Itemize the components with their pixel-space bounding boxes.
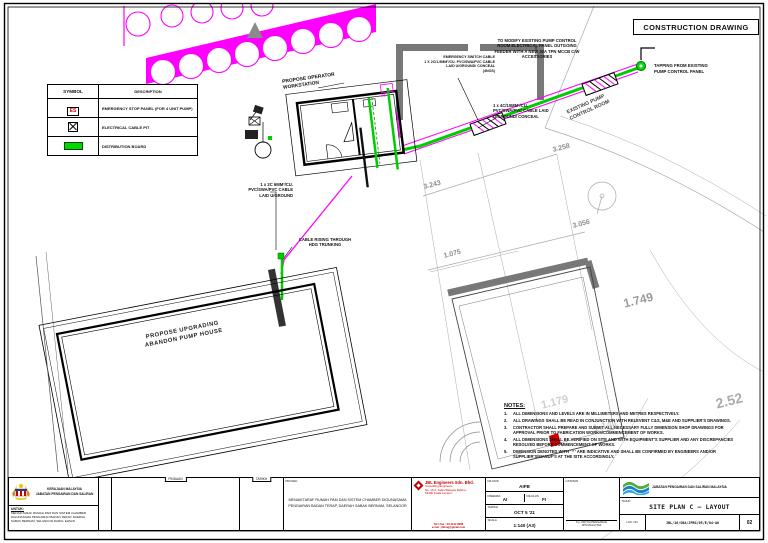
label-tapping: TAPPING FROM EXISTING PUMP CONTROL PANEL (654, 63, 750, 74)
tarikh-value: OCT 5 '21 (514, 507, 535, 515)
consultant-foot2: e-mel : jbleng@gmail.com (412, 526, 485, 529)
skala-value: 1:140 (A3) (514, 520, 536, 528)
label-cable-rising: CABLE RISING THROUGH HDG TRUNKING (289, 237, 361, 248)
legend-desc-cable-pit: ELECTRICAL CABLE PIT (99, 118, 198, 137)
dilukis-label: DILUKIS (488, 479, 499, 483)
cable-pit-hatch-2 (582, 73, 618, 96)
tarikh-field-label: TARIKH (488, 505, 498, 509)
construction-drawing-stamp: CONSTRUCTION DRAWING (633, 19, 759, 35)
tajuk-label: TAJUK: (622, 499, 632, 503)
note-item: 3.CONTRACTOR SHALL PREPARE AND SUBMIT AL… (504, 425, 734, 436)
jps-waves-logo (623, 481, 649, 495)
titleblock-tarikh-col: TARIKH (240, 478, 284, 530)
jbl-logo (413, 481, 423, 491)
sheet-number: 02 (739, 515, 759, 530)
drawing-number: JBL/16/SBA/JPRG/05/E/04-A0 (646, 515, 739, 530)
disemak-label: DISEMAK (488, 494, 501, 498)
note-item: 2.ALL DRAWINGS SHALL BE READ IN CONJUNCT… (504, 418, 734, 423)
notes-block: NOTES: 1.ALL DIMENSIONS AND LEVELS ARE I… (504, 403, 734, 461)
distribution-board-icon (64, 142, 83, 150)
untuk-text: MENAIKTARAF RUMAH PAM DAN SISTEM CHAMBER… (11, 512, 96, 524)
titleblock-jps-col: JABATAN PENGAIRAN DAN SALIRAN MALAYSIA T… (620, 478, 759, 530)
legend-table: SYMBOL DESCRIPTION ES EMERGENCY STOP PAN… (47, 84, 198, 156)
drawing-title: SITE PLAN C — LAYOUT (649, 501, 730, 511)
tapping-point (637, 48, 656, 71)
note-item: 1.ALL DIMENSIONS AND LEVELS ARE IN MILLI… (504, 411, 734, 416)
legend-desc-distribution-board: DISTRIBUTION BOARD (99, 137, 198, 156)
label-modify-panel: TO MODIFY EXISTING PUMP CONTROL ROOM ELE… (476, 38, 598, 60)
notes-title: NOTES: (504, 403, 734, 409)
equipment-cluster (245, 105, 272, 158)
luk-no-label: LUK. NO. (620, 515, 646, 530)
legend-header-symbol: SYMBOL (48, 85, 99, 99)
label-es-tag: ES (381, 93, 386, 98)
drawing-sheet: CONSTRUCTION DRAWING SYMBOL DESCRIPTION … (0, 0, 768, 543)
titleblock-rev-index-col (99, 478, 112, 530)
cable-pit-icon (68, 122, 78, 132)
consultant-addr2: 53300 Kuala Lumpur. (425, 492, 483, 496)
titleblock-consultant-col: JBL Engineers Sdn. Bhd. Consulting Engin… (412, 478, 486, 530)
malaysia-coat-of-arms (11, 483, 31, 501)
pindaan-header: PINDAAN (164, 477, 186, 482)
dilukis-value: AIFB (519, 481, 530, 489)
project-title: MENAIKTARAF RUMAH PAM DAN SISTEM CHAMBER… (288, 498, 407, 510)
pump-house (39, 267, 367, 482)
titleblock-fields-col: DILUKIS AIFB DISEMAK AI DILULUS FI TARIK… (486, 478, 564, 530)
legend-header-description: DESCRIPTION (99, 85, 198, 99)
legend-desc-emergency-stop: EMERGENCY STOP PANEL (FOR 4 UNIT PUMP) (99, 99, 198, 118)
titleblock-pindaan-col: PINDAAN (112, 478, 240, 530)
tarikh-header: TARIKH (252, 477, 271, 482)
catatan-label: CATATAN (566, 479, 579, 483)
label-cable-4c: 1 x 4C/10MM²/CU. PVC/SWA/PVC CABLE LAID … (493, 103, 575, 119)
disemak-value: AI (503, 494, 508, 502)
jps-name: JABATAN PENGAIRAN DAN SALIRAN MALAYSIA (652, 485, 756, 489)
vegetation-hatch (0, 0, 768, 85)
titleblock-catatan-col: CATATAN b.p. KETUA PENGARAH JPS MALAYSIA (564, 478, 620, 530)
note-item: 5.DIMENSION DENOTED WITH ' * ' ARE INDIC… (504, 449, 734, 460)
note-item: 4.ALL DIMENSIONS SHALL BE VERIFIED ON SI… (504, 437, 734, 448)
label-cable-2c: 1 x 2C 6MM²/CU. PVC/SWA/PVC CABLE LAID U… (229, 182, 293, 198)
skala-label: SKALA (488, 518, 497, 522)
titleblock-project-col: PROJEK: MENAIKTARAF RUMAH PAM DAN SISTEM… (284, 478, 412, 530)
dilulus-value: FI (542, 494, 546, 502)
signature-line2: JPS MALAYSIA (566, 524, 617, 528)
title-block: KERAJAAN MALAYSIA JABATAN PENGAIRAN DAN … (8, 477, 760, 531)
titleblock-agency-col: KERAJAAN MALAYSIA JABATAN PENGAIRAN DAN … (9, 478, 99, 530)
site-plan-drawing (0, 0, 768, 543)
dilulus-label: DILULUS (527, 494, 539, 498)
emergency-stop-icon: ES (67, 107, 80, 116)
agency-line2: JABATAN PENGAIRAN DAN SALIRAN (33, 492, 96, 496)
projek-label: PROJEK: (286, 479, 298, 483)
